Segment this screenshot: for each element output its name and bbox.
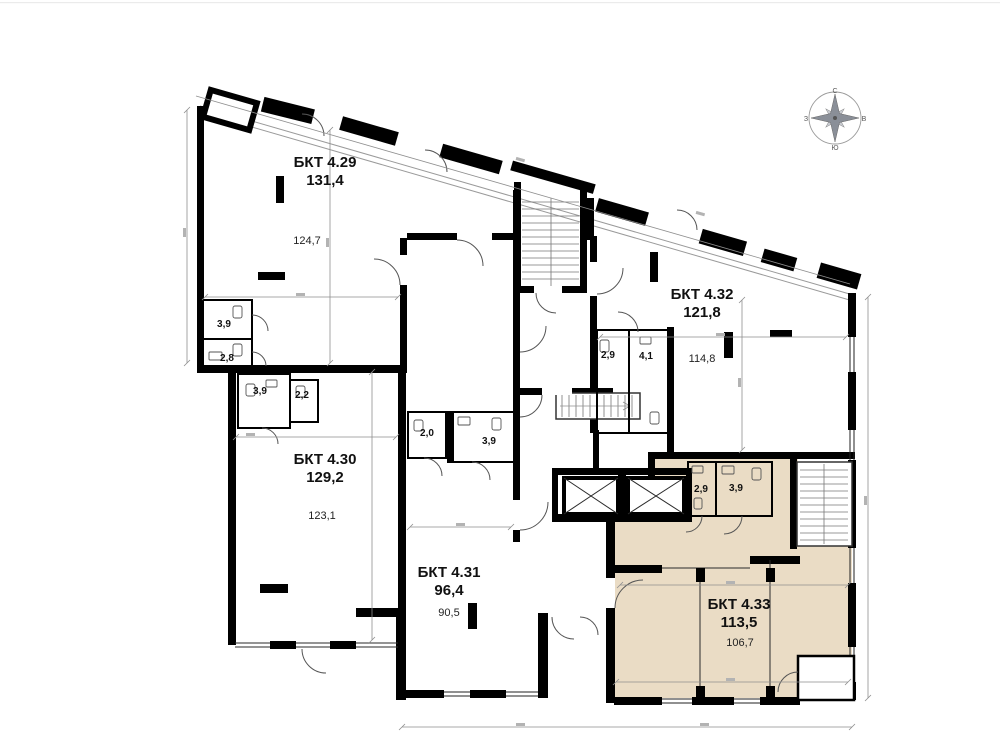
- unit-4-32-region[interactable]: [598, 240, 846, 450]
- compass-south-label: Ю: [831, 145, 838, 152]
- floor-plan-page: БКТ 4.29 131,4 124,7 3,9 2,8 БКТ 4.30 12…: [0, 0, 1000, 750]
- compass-west-label: З: [804, 116, 808, 123]
- compass-rose: С Ю З В: [804, 88, 867, 152]
- staircase-main: [510, 161, 595, 293]
- unit-4-30-region[interactable]: [238, 372, 396, 640]
- compass-east-label: В: [862, 116, 867, 123]
- page-top-divider: [0, 2, 1000, 3]
- unit-4-29-region[interactable]: [202, 110, 515, 362]
- compass-north-label: С: [832, 88, 837, 95]
- staircase-right: [797, 462, 852, 546]
- floor-plan-canvas: БКТ 4.29 131,4 124,7 3,9 2,8 БКТ 4.30 12…: [0, 0, 1000, 750]
- unit-4-31-region[interactable]: [410, 396, 512, 686]
- unit-regions: [202, 110, 852, 698]
